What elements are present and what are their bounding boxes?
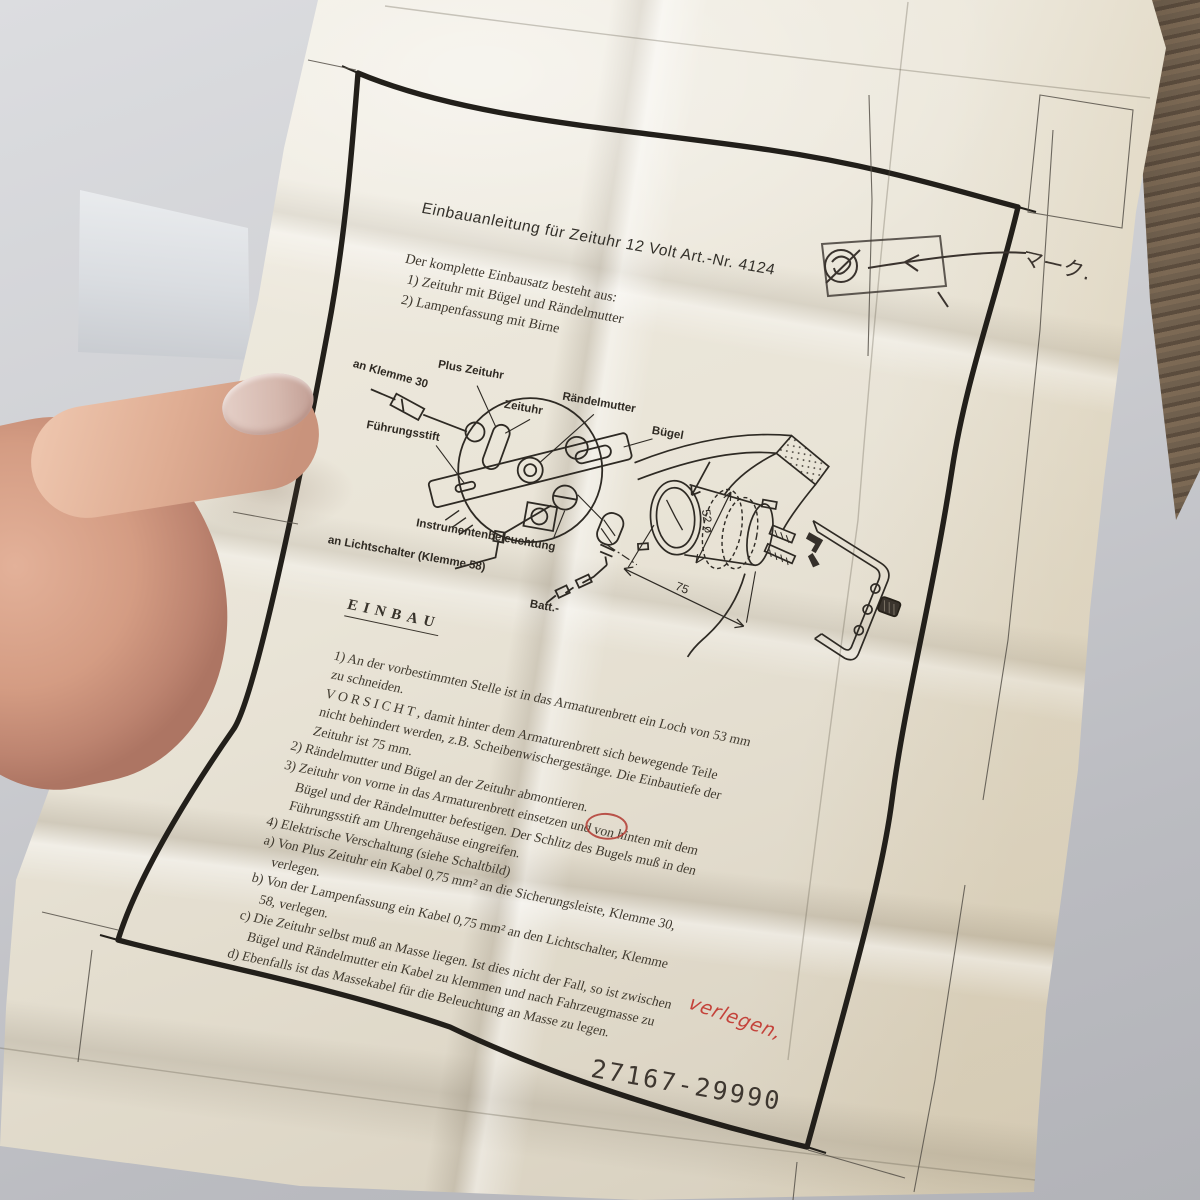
connector-part — [801, 532, 825, 569]
bracket-outer — [790, 521, 896, 664]
red-handwritten-word: verlegen, — [685, 992, 786, 1044]
clock-side-diagram-art — [577, 390, 965, 721]
installation-diagram: 52 ø 75 — [577, 390, 965, 721]
photo-scene: Einbauanleitung für Zeituhr 12 Volt Art.… — [0, 0, 1200, 1200]
